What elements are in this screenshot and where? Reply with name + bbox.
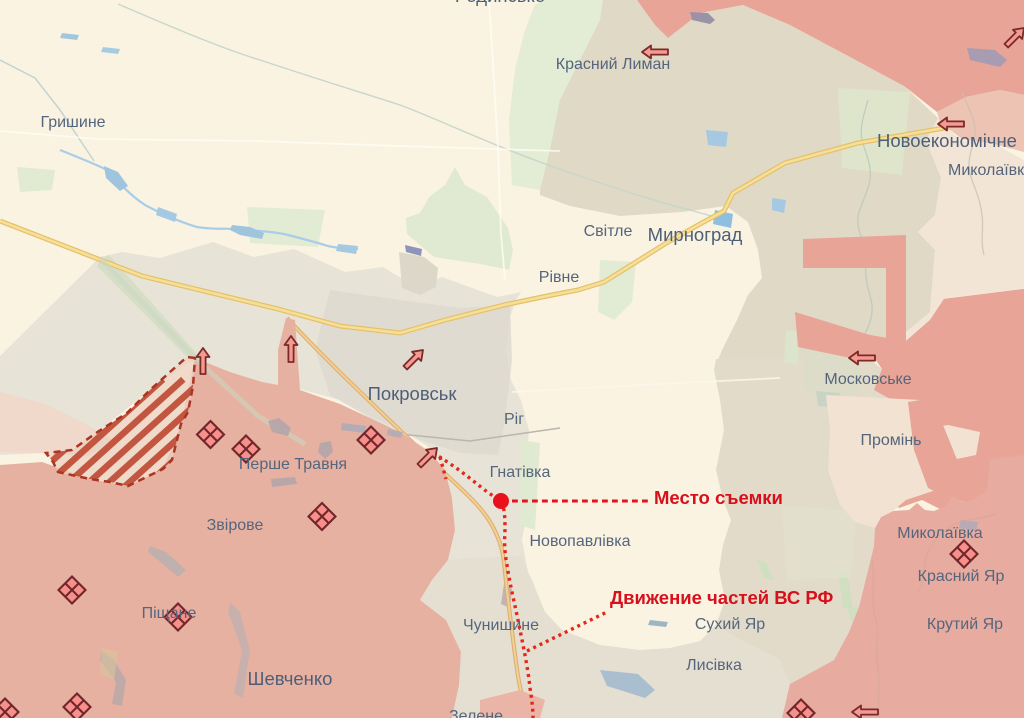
svg-text:Красний Лиман: Красний Лиман bbox=[556, 56, 670, 73]
svg-text:Зелене: Зелене bbox=[449, 708, 503, 718]
svg-text:Сухий Яр: Сухий Яр bbox=[695, 616, 765, 633]
svg-text:Піщане: Піщане bbox=[142, 605, 197, 622]
svg-text:Миколаївка: Миколаївка bbox=[948, 162, 1024, 179]
svg-text:Место съемки: Место съемки bbox=[654, 487, 783, 508]
svg-text:Гнатівка: Гнатівка bbox=[490, 464, 551, 481]
svg-text:Перше Травня: Перше Травня bbox=[239, 456, 347, 473]
svg-text:Промінь: Промінь bbox=[860, 432, 921, 449]
svg-text:Чунишине: Чунишине bbox=[463, 617, 539, 634]
svg-text:Покровськ: Покровськ bbox=[368, 383, 458, 404]
svg-text:Мирноград: Мирноград bbox=[648, 224, 743, 245]
svg-text:Новопавлівка: Новопавлівка bbox=[529, 533, 630, 550]
svg-text:Красний Яр: Красний Яр bbox=[918, 568, 1005, 585]
svg-text:Звірове: Звірове bbox=[207, 517, 264, 534]
svg-text:Шевченко: Шевченко bbox=[248, 668, 333, 689]
svg-text:Гришине: Гришине bbox=[40, 114, 105, 131]
svg-text:Новоекономічне: Новоекономічне bbox=[877, 130, 1017, 151]
svg-text:Ріг: Ріг bbox=[504, 411, 524, 428]
svg-text:Родинське: Родинське bbox=[455, 0, 545, 6]
svg-text:Крутий Яр: Крутий Яр bbox=[927, 616, 1003, 633]
svg-text:Движение частей ВС РФ: Движение частей ВС РФ bbox=[610, 587, 833, 608]
svg-text:Рівне: Рівне bbox=[539, 269, 580, 286]
svg-text:Московське: Московське bbox=[824, 371, 911, 388]
svg-text:Миколаївка: Миколаївка bbox=[897, 525, 983, 542]
svg-text:Лисівка: Лисівка bbox=[686, 657, 742, 674]
svg-text:Світле: Світле bbox=[584, 223, 633, 240]
